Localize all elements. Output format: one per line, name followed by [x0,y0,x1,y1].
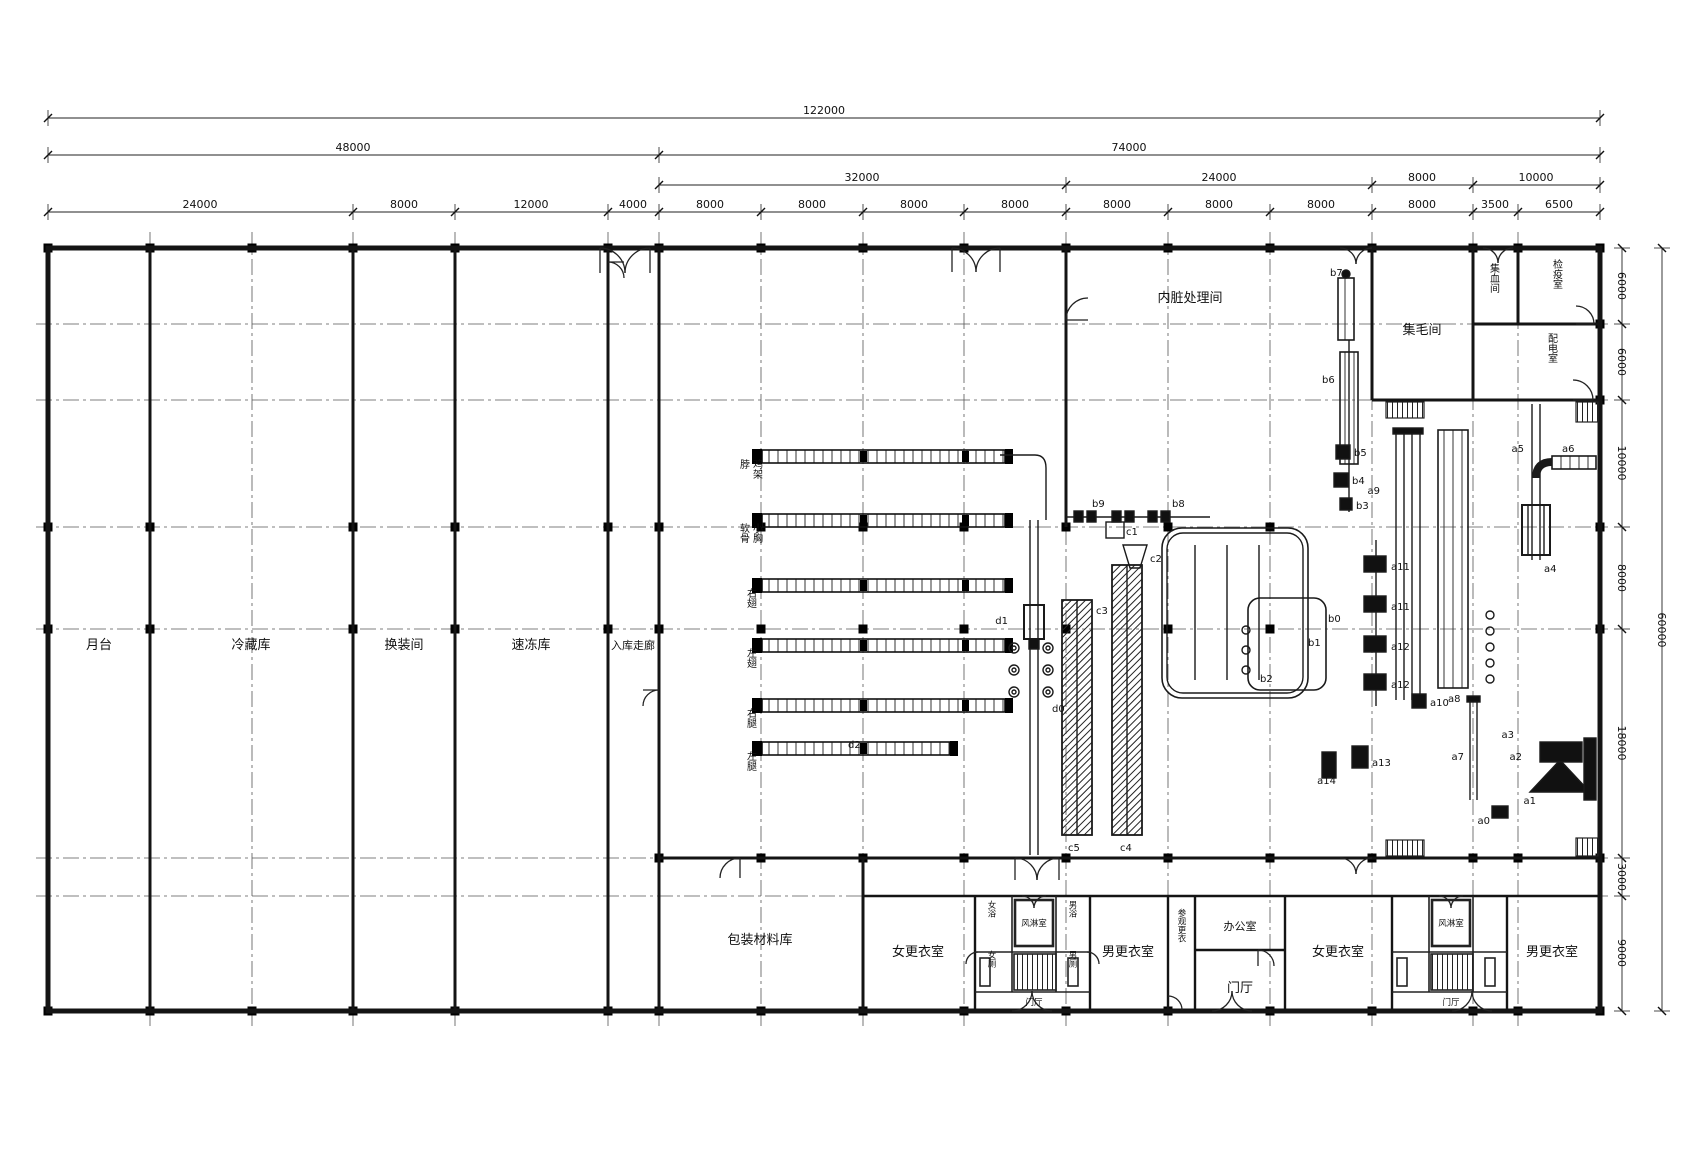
tag-a14: a14 [1317,776,1336,787]
tag-c2: c2 [1150,554,1162,565]
tag-a11b: a11 [1391,602,1410,613]
dim-label: 8000 [1103,198,1131,211]
chain-b7 [1338,278,1354,340]
tag-a11: a11 [1391,562,1410,573]
door-icon [1022,896,1034,908]
tag-a8: a8 [1448,694,1461,705]
dim-label: 9000 [1615,939,1628,967]
door-icon [1576,306,1594,324]
tag-b9: b9 [1092,499,1105,510]
tag-b6: b6 [1322,375,1335,386]
door-icon [1451,896,1463,908]
machine-b5 [1336,445,1350,459]
door-icon [720,858,740,878]
room-label-air-shower-1: 风淋室 [1021,918,1047,929]
overhead-loop [1162,528,1308,698]
dim-label: 3000 [1615,863,1628,891]
machine-a0 [1492,806,1508,818]
tag-d2: d2 [848,740,861,751]
door-icon [1034,896,1046,908]
door-icon [1066,298,1088,320]
tag-a6: a6 [1562,444,1575,455]
dim-label: 12000 [514,198,549,211]
tag-a3: a3 [1502,730,1515,741]
rails-a8 [1438,430,1468,688]
floor-plan-canvas: 122000 48000 74000 32000 24000 8000 1000… [0,0,1695,1170]
dim-label: 8000 [900,198,928,211]
dim-label: 74000 [1112,141,1147,154]
room-label-women-wc: 女厕 [988,950,997,970]
room-label-women-shower: 女浴 [988,900,997,920]
room-label-hall-small-1: 门厅 [1025,997,1043,1008]
dim-label: 6000 [1615,272,1628,300]
door-icon [1340,858,1356,874]
chute-feed [1000,455,1046,520]
cut-label-right-leg: 右腿 [747,707,757,730]
dim-label: 3500 [1481,198,1509,211]
room-label-men-change-1: 男更衣室 [1102,944,1154,960]
door-icon [1573,380,1593,400]
tag-a4: a4 [1544,564,1557,575]
dim-label: 8000 [1307,198,1335,211]
machine-a12b [1364,674,1386,690]
tag-b7: b7 [1330,268,1343,279]
tag-b4: b4 [1352,476,1365,487]
roller-circles [1009,643,1053,697]
room-label-hall-main: 门厅 [1227,981,1253,996]
room-label-platform: 月台 [86,638,112,653]
dim-label: 8000 [390,198,418,211]
room-label-power: 配电室 [1548,333,1558,365]
room-label-blood: 集血间 [1490,262,1500,295]
cut-label-cartilage: 软骨 [740,522,750,545]
tag-a0: a0 [1478,816,1491,827]
cut-label-left-wing: 左翅 [747,647,757,670]
dim-label: 24000 [1202,171,1237,184]
tag-a9: a9 [1368,486,1381,497]
conveyor-a6 [1552,456,1596,469]
room-label-feather: 集毛间 [1402,322,1441,338]
tag-a12b: a12 [1391,680,1410,691]
machine-a14 [1322,752,1336,778]
dim-label: 8000 [1408,171,1436,184]
tag-b3: b3 [1356,501,1369,512]
stair-icon [1386,840,1424,856]
grid-columns [44,244,1605,1016]
tag-b2: b2 [1260,674,1273,685]
dim-label: 24000 [183,198,218,211]
room-label-viscera: 内脏处理间 [1157,290,1222,306]
machine-a4 [1522,505,1550,555]
tag-d1: d1 [995,616,1008,627]
dim-label: 8000 [1408,198,1436,211]
tag-a7: a7 [1452,752,1465,763]
door-icon [625,248,650,273]
dim-label: 8000 [696,198,724,211]
door-icon [976,248,1000,272]
tag-a12: a12 [1391,642,1410,653]
room-label-men-change-2: 男更衣室 [1526,944,1578,960]
floor-plan-drawing: 122000 48000 74000 32000 24000 8000 1000… [0,0,1695,1170]
room-label-women-change-2: 女更衣室 [1312,944,1364,960]
equipment [1000,270,1596,855]
cut-label-neck: 脖 [740,458,750,471]
room-label-men-wc: 男厕 [1069,951,1078,970]
machine-a10 [1412,694,1426,708]
dim-label: 6000 [1615,348,1628,376]
tag-c3: c3 [1096,606,1108,617]
conveyor-cut-labels: 脖 鸡架 软骨 小胸 右翅 左翅 右腿 左腿 [740,458,763,773]
dim-label: 32000 [845,171,880,184]
tag-a5: a5 [1512,444,1525,455]
machine-a12 [1364,636,1386,652]
dim-label: 8000 [1615,564,1628,592]
sanitary-blocks [975,896,1507,992]
tag-b0: b0 [1328,614,1341,625]
machine-b4 [1334,473,1348,487]
tag-b8: b8 [1172,499,1185,510]
room-label-quarantine: 检疫室 [1553,258,1563,291]
tag-a2: a2 [1510,752,1523,763]
walls [48,248,1600,1011]
door-icon [643,690,659,706]
tag-a13: a13 [1372,758,1391,769]
tag-a1: a1 [1524,796,1537,807]
dim-label: 60000 [1655,613,1668,648]
dim-label: 4000 [619,198,647,211]
cut-label-right-wing: 右翅 [747,587,757,610]
tag-a10: a10 [1430,698,1449,709]
tag-c4: c4 [1120,843,1132,854]
door-icon [1258,950,1274,966]
chute-gate [1024,605,1044,639]
machine-c1 [1106,522,1124,538]
door-icon [1015,858,1037,880]
tag-c5: c5 [1068,843,1080,854]
dim-label: 18000 [1615,726,1628,761]
boot-wash-2 [1431,954,1473,990]
door-icon [608,262,624,278]
stair-icon [1576,838,1598,856]
room-label-visitor-change: 参观更衣 [1178,908,1187,945]
dim-label: 8000 [1001,198,1029,211]
room-label-office: 办公室 [1224,919,1257,933]
tag-d0: d0 [1052,704,1065,715]
dim-label: 6500 [1545,198,1573,211]
tag-b1: b1 [1308,638,1321,649]
machine-a11b [1364,596,1386,612]
cut-label-left-leg: 左腿 [747,750,757,773]
tag-c1: c1 [1126,527,1138,538]
boot-wash-1 [1014,954,1056,990]
hook-circles [1486,611,1494,683]
room-label-air-shower-2: 风淋室 [1438,918,1464,929]
cut-label-breast: 小胸 [753,523,763,545]
room-label-hall-small-2: 门厅 [1442,997,1460,1008]
door-icon [1037,858,1059,880]
stair-icon [1386,402,1424,418]
room-label-women-change-1: 女更衣室 [892,944,944,960]
dim-label: 8000 [798,198,826,211]
dim-label: 10000 [1519,171,1554,184]
dim-label: 10000 [1615,446,1628,481]
dim-label: 122000 [803,104,845,117]
room-label-quick-freeze: 速冻库 [511,637,550,653]
stair-icon [1576,402,1598,422]
machine-a1 [1530,760,1590,792]
machine-a13 [1352,746,1368,768]
cut-label-frame: 鸡架 [753,458,763,481]
tag-b5: b5 [1354,448,1367,459]
dim-label: 8000 [1205,198,1233,211]
room-label-entry-corridor: 入库走廊 [611,638,655,652]
machine-b3 [1340,498,1352,510]
dim-label: 48000 [336,141,371,154]
room-label-men-shower: 男浴 [1069,901,1078,920]
machine-a11 [1364,556,1386,572]
room-label-changing: 换装间 [384,638,423,653]
room-label-cold-storage: 冷藏库 [231,637,270,653]
cutup-conveyors [752,449,1013,756]
door-icon [1439,896,1451,908]
room-label-packaging: 包装材料库 [727,932,792,948]
